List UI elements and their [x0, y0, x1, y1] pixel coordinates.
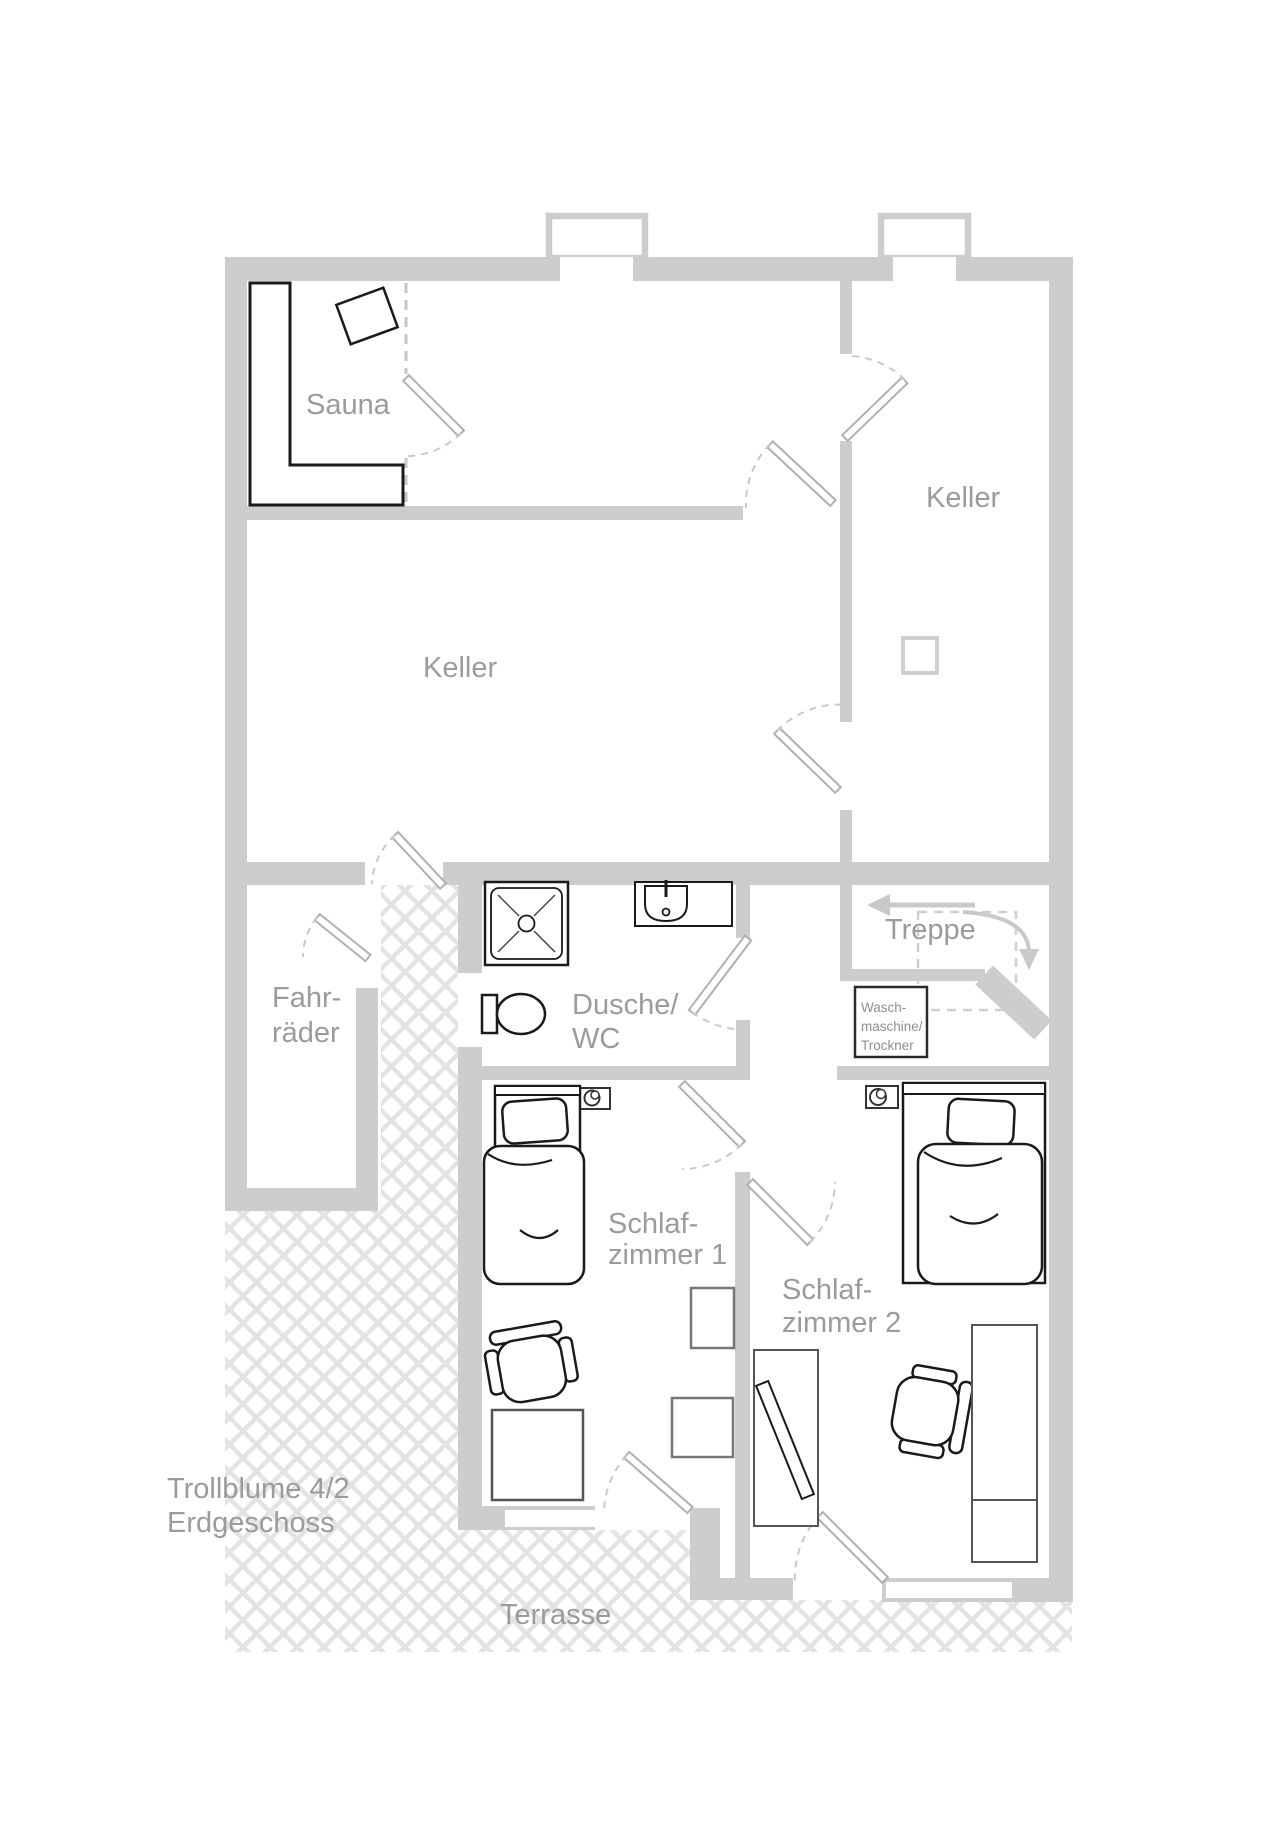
schlafzimmer1-door-icon — [679, 1081, 745, 1169]
wall-dusche-left-lower — [458, 1047, 482, 1530]
label-schlafzimmer2-line1: Schlaf- — [782, 1274, 872, 1306]
label-treppe: Treppe — [885, 914, 976, 946]
keller-lower-door-icon — [774, 705, 847, 793]
wall-sz1-top — [458, 1066, 750, 1080]
washer-dryer-box: Wasch- maschine/ Trockner — [855, 987, 927, 1057]
washer-label-line1: Wasch- — [861, 1000, 906, 1015]
label-keller-right: Keller — [926, 482, 1000, 514]
hatch-terrace-right — [690, 1600, 1072, 1652]
desk-sz1 — [492, 1410, 583, 1500]
wall-jog-horizontal — [720, 1578, 793, 1600]
office-chair-icon — [887, 1362, 975, 1462]
sauna-door-icon — [403, 375, 464, 456]
wall-dusche-left-upper — [458, 862, 482, 973]
hatch-garden-block — [225, 1211, 458, 1652]
wall-lamp-icon — [580, 1088, 610, 1109]
address-line2: Erdgeschoss — [167, 1507, 335, 1539]
label-dusche-line2: WC — [572, 1023, 620, 1055]
address-line1: Trollblume 4/2 — [167, 1473, 350, 1505]
wall-exterior-left — [225, 257, 247, 1211]
wall-central-lower — [840, 810, 852, 981]
shaft-square — [903, 638, 937, 673]
wall-sz2-top — [837, 1066, 1049, 1080]
floor-plan-page: Wasch- maschine/ Trockner — [0, 0, 1284, 1843]
label-sauna: Sauna — [306, 389, 391, 421]
toilet-icon — [482, 994, 545, 1034]
shower-icon — [485, 882, 568, 965]
sz1-terrace-door-icon — [604, 1452, 693, 1513]
desk-sz2-left — [754, 1350, 818, 1526]
window-sz1-south — [505, 1510, 595, 1527]
keller-upper-door-icon — [842, 356, 907, 441]
wall-exterior-right — [1049, 257, 1073, 1602]
window-sz2-south — [886, 1582, 1012, 1598]
label-dusche-line1: Dusche/ — [572, 989, 679, 1021]
label-terrasse: Terrasse — [500, 1599, 611, 1631]
label-fahrraeder-line2: räder — [272, 1017, 340, 1049]
wall-fahrraeder-bottom — [225, 1188, 378, 1211]
wall-band-left — [225, 862, 365, 885]
window-north-1-icon — [549, 216, 645, 281]
label-schlafzimmer1-line2: zimmer 1 — [608, 1239, 727, 1271]
wall-sauna-keller-divider — [247, 506, 743, 520]
washer-label-line3: Trockner — [861, 1038, 914, 1053]
label-schlafzimmer2-line2: zimmer 2 — [782, 1307, 901, 1339]
hatch-terrace-left — [458, 1530, 690, 1652]
hatch-side-path — [381, 885, 458, 1211]
schlafzimmer2-door-icon — [747, 1179, 835, 1245]
label-fahrraeder-line1: Fahr- — [272, 982, 341, 1014]
desk-sz2-right — [972, 1325, 1037, 1562]
wall-dusche-right-upper — [736, 862, 750, 938]
keller-exit-door-icon — [372, 832, 446, 889]
window-north-2-icon — [881, 216, 968, 281]
wall-sz-divider — [735, 1172, 750, 1600]
dusche-door-icon — [689, 936, 751, 1030]
office-chair-icon — [481, 1319, 581, 1407]
bed-icon — [903, 1083, 1045, 1284]
sauna-heater-icon — [336, 288, 397, 345]
blanket — [484, 1146, 584, 1284]
sink-icon — [635, 880, 732, 926]
bed-icon — [484, 1086, 584, 1284]
blanket — [918, 1144, 1042, 1284]
wall-fahrraeder-right — [356, 988, 378, 1195]
label-schlafzimmer1-line1: Schlaf- — [608, 1208, 698, 1240]
wall-jog-vertical — [690, 1508, 720, 1600]
wall-lamp-icon — [866, 1086, 898, 1108]
label-keller-main: Keller — [423, 652, 497, 684]
wall-central-middle — [840, 441, 852, 722]
wall-central-upper — [840, 281, 852, 354]
keller-divider-door-icon — [746, 441, 836, 508]
shelf-square-1 — [691, 1288, 734, 1348]
fahrraeder-door-icon — [303, 914, 371, 961]
washer-label-line2: maschine/ — [861, 1019, 923, 1034]
floor-plan-drawing: Wasch- maschine/ Trockner — [0, 0, 1284, 1843]
shelf-square-2 — [672, 1398, 733, 1457]
wall-understair-diagonal — [984, 975, 1043, 1030]
